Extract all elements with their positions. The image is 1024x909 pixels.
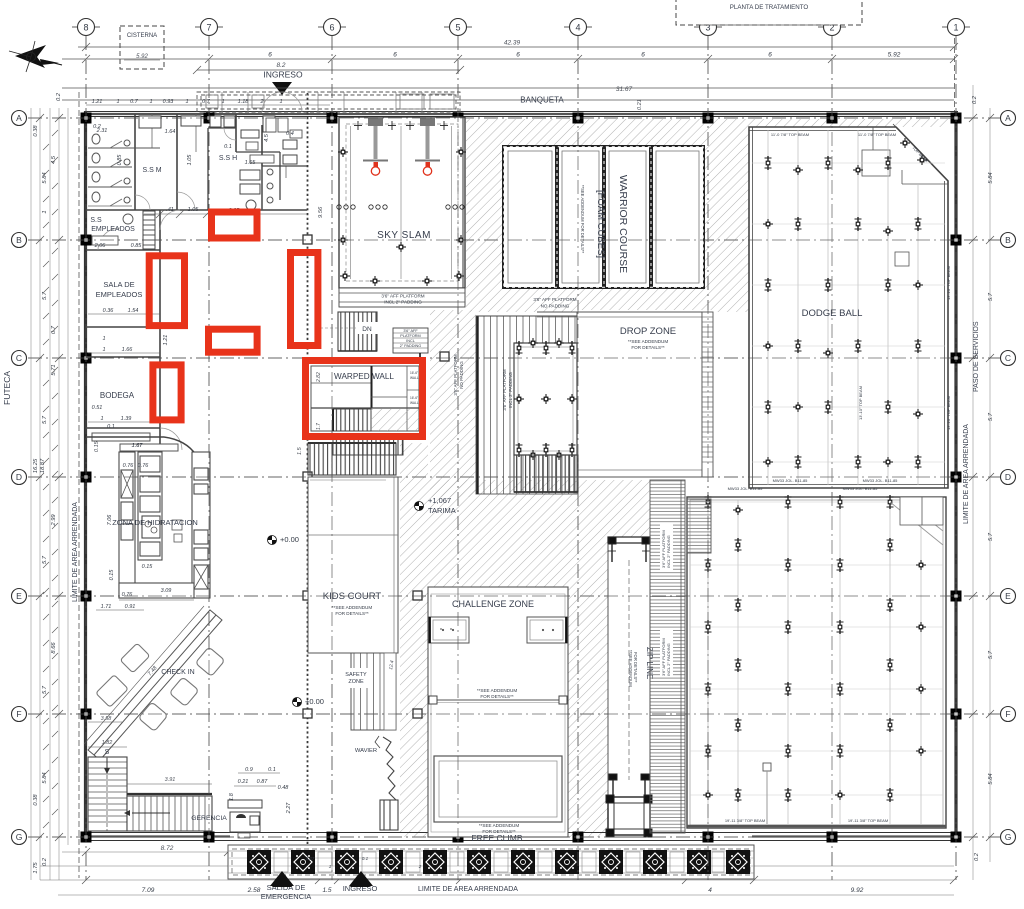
svg-text:ZONA DE HIDRATACION: ZONA DE HIDRATACION bbox=[112, 518, 198, 527]
svg-text:0.85: 0.85 bbox=[117, 154, 123, 166]
svg-text:0.76: 0.76 bbox=[122, 592, 134, 598]
svg-text:A: A bbox=[1005, 113, 1011, 123]
svg-text:0.51: 0.51 bbox=[92, 405, 103, 411]
svg-text:4: 4 bbox=[575, 23, 580, 33]
svg-text:5.7: 5.7 bbox=[988, 532, 994, 541]
svg-text:11'-0 7/8" TOP BEAM: 11'-0 7/8" TOP BEAM bbox=[771, 132, 809, 137]
svg-text:3.91: 3.91 bbox=[165, 777, 176, 783]
svg-text:5.71: 5.71 bbox=[51, 364, 57, 375]
svg-text:8.66: 8.66 bbox=[51, 642, 57, 654]
svg-text:**SEE ADDENDUM FOR DETAILS**: **SEE ADDENDUM FOR DETAILS** bbox=[580, 185, 585, 254]
svg-text:3'6" AFF PLATFORM: 3'6" AFF PLATFORM bbox=[381, 294, 424, 299]
svg-text:1.8: 1.8 bbox=[229, 792, 235, 801]
svg-text:19'-11 3/8" TOP BEAM: 19'-11 3/8" TOP BEAM bbox=[725, 818, 765, 823]
svg-text:+0.00: +0.00 bbox=[305, 697, 324, 706]
svg-text:LIMITE DE AREA ARRENDADA: LIMITE DE AREA ARRENDADA bbox=[72, 502, 79, 602]
svg-text:0.15: 0.15 bbox=[142, 564, 154, 570]
svg-text:2" PADDING: 2" PADDING bbox=[400, 344, 422, 348]
svg-text:1: 1 bbox=[100, 416, 103, 422]
svg-text:1.64: 1.64 bbox=[165, 129, 176, 135]
svg-text:MW33 JOL. B11-85: MW33 JOL. B11-85 bbox=[773, 478, 809, 483]
svg-text:0.27: 0.27 bbox=[306, 856, 315, 861]
svg-text:1.39: 1.39 bbox=[121, 416, 132, 422]
svg-text:3.09: 3.09 bbox=[161, 588, 172, 594]
svg-text:7: 7 bbox=[206, 23, 211, 33]
svg-text:0.4: 0.4 bbox=[286, 131, 294, 137]
svg-text:3'6" AFF PLATFORM: 3'6" AFF PLATFORM bbox=[453, 354, 458, 396]
svg-text:0.87: 0.87 bbox=[257, 779, 269, 785]
svg-text:.41: .41 bbox=[166, 207, 174, 213]
svg-text:LIMITE DE AREA ARRENDADA: LIMITE DE AREA ARRENDADA bbox=[963, 424, 970, 524]
svg-text:1: 1 bbox=[116, 99, 119, 105]
svg-text:8.72: 8.72 bbox=[161, 845, 174, 852]
svg-text:D: D bbox=[1005, 472, 1011, 482]
svg-text:16.25: 16.25 bbox=[33, 458, 39, 473]
svg-text:5.84: 5.84 bbox=[988, 773, 994, 784]
svg-text:S.S: S.S bbox=[90, 217, 102, 224]
svg-text:LIMITE DE AREA ARRENDADA: LIMITE DE AREA ARRENDADA bbox=[418, 886, 518, 893]
svg-text:1: 1 bbox=[953, 23, 958, 33]
svg-text:INCL 2" PADDING: INCL 2" PADDING bbox=[666, 643, 671, 676]
svg-text:G: G bbox=[16, 832, 23, 842]
svg-text:1.5: 1.5 bbox=[297, 446, 303, 455]
svg-text:E: E bbox=[1005, 591, 1011, 601]
svg-text:MW33 JOL. B11-85: MW33 JOL. B11-85 bbox=[728, 486, 764, 491]
svg-text:5.7: 5.7 bbox=[42, 291, 48, 300]
svg-text:SAFETY: SAFETY bbox=[345, 672, 367, 678]
svg-text:WARRIOR COURSE: WARRIOR COURSE bbox=[617, 175, 629, 273]
svg-text:B: B bbox=[16, 235, 22, 245]
svg-text:E: E bbox=[16, 591, 22, 601]
svg-text:5.7: 5.7 bbox=[988, 650, 994, 659]
svg-text:1: 1 bbox=[42, 210, 48, 213]
svg-text:2.27: 2.27 bbox=[286, 802, 292, 815]
svg-text:S.S M: S.S M bbox=[142, 167, 161, 174]
svg-text:5: 5 bbox=[455, 23, 460, 33]
svg-text:FUTECA: FUTECA bbox=[2, 371, 12, 405]
svg-text:6: 6 bbox=[768, 52, 772, 59]
svg-text:EMPLEADOS: EMPLEADOS bbox=[96, 290, 143, 299]
svg-text:9.92: 9.92 bbox=[851, 887, 864, 894]
svg-text:0.9: 0.9 bbox=[245, 767, 253, 773]
svg-text:F: F bbox=[16, 709, 21, 719]
svg-text:5.7: 5.7 bbox=[42, 685, 48, 694]
svg-text:S: S bbox=[105, 749, 110, 756]
svg-text:C: C bbox=[16, 353, 22, 363]
svg-text:2.06: 2.06 bbox=[94, 243, 107, 249]
svg-text:6: 6 bbox=[516, 52, 520, 59]
svg-text:DROP ZONE: DROP ZONE bbox=[620, 326, 676, 337]
svg-text:1.5: 1.5 bbox=[322, 887, 331, 894]
svg-text:5.7: 5.7 bbox=[42, 555, 48, 564]
svg-text:1.21: 1.21 bbox=[92, 99, 103, 105]
svg-text:0.21: 0.21 bbox=[238, 779, 249, 785]
svg-text:1.05: 1.05 bbox=[188, 207, 200, 213]
svg-text:5.92: 5.92 bbox=[888, 52, 901, 59]
svg-text:NO PADDING: NO PADDING bbox=[541, 304, 570, 309]
svg-text:FOR DETAILS**: FOR DETAILS** bbox=[631, 345, 665, 350]
svg-text:KIDS COURT: KIDS COURT bbox=[323, 591, 382, 602]
svg-text:SALA DE: SALA DE bbox=[103, 280, 134, 289]
svg-text:0.76: 0.76 bbox=[138, 463, 150, 469]
svg-text:G: G bbox=[1005, 832, 1012, 842]
svg-text:1.71: 1.71 bbox=[101, 604, 112, 610]
svg-text:0.85: 0.85 bbox=[131, 243, 143, 249]
svg-text:3'6" AFF: 3'6" AFF bbox=[403, 329, 418, 333]
svg-text:INGRESO: INGRESO bbox=[263, 70, 303, 80]
svg-text:FOR DETAILS**: FOR DETAILS** bbox=[480, 694, 514, 699]
svg-text:0.2: 0.2 bbox=[974, 852, 980, 861]
svg-text:FOR DETAILS**: FOR DETAILS** bbox=[633, 652, 638, 683]
svg-text:6: 6 bbox=[329, 23, 334, 33]
svg-text:0.48: 0.48 bbox=[278, 785, 290, 791]
svg-text:2.58: 2.58 bbox=[247, 887, 261, 894]
svg-text:1.18: 1.18 bbox=[238, 99, 250, 105]
svg-text:INCL 2" PADDING: INCL 2" PADDING bbox=[666, 535, 671, 568]
svg-text:**SEE ADDENDUM: **SEE ADDENDUM bbox=[477, 688, 518, 693]
svg-text:+0.00: +0.00 bbox=[280, 535, 299, 544]
svg-text:6: 6 bbox=[268, 52, 272, 59]
svg-text:EMERGENCIA: EMERGENCIA bbox=[261, 892, 311, 901]
svg-text:18.87: 18.87 bbox=[40, 458, 46, 473]
svg-text:0.91: 0.91 bbox=[125, 604, 136, 610]
svg-text:**SEE ADDENDUM: **SEE ADDENDUM bbox=[332, 605, 373, 610]
svg-text:NO PADDING: NO PADDING bbox=[459, 361, 464, 389]
svg-text:ZONE: ZONE bbox=[348, 679, 364, 685]
svg-text:7.09: 7.09 bbox=[142, 887, 155, 894]
svg-text:0.38: 0.38 bbox=[33, 125, 39, 137]
svg-text:D: D bbox=[16, 472, 22, 482]
svg-text:2.82: 2.82 bbox=[316, 372, 322, 383]
svg-text:EMPLEADOS: EMPLEADOS bbox=[91, 226, 135, 233]
svg-text:0.2: 0.2 bbox=[972, 95, 978, 104]
svg-text:0.36: 0.36 bbox=[103, 308, 115, 314]
svg-text:8: 8 bbox=[83, 23, 88, 33]
svg-text:5.84: 5.84 bbox=[988, 172, 994, 183]
svg-text:13'-10" TOP BEAM: 13'-10" TOP BEAM bbox=[858, 386, 863, 420]
svg-text:1: 1 bbox=[149, 99, 152, 105]
svg-text:BANQUETA: BANQUETA bbox=[520, 96, 564, 105]
svg-text:S.S H: S.S H bbox=[219, 155, 237, 162]
svg-text:0.1: 0.1 bbox=[224, 144, 232, 150]
svg-text:13'-10" TOP BEAM: 13'-10" TOP BEAM bbox=[946, 396, 951, 430]
svg-text:WARPED WALL: WARPED WALL bbox=[334, 372, 394, 381]
svg-text:MW33 JOL. B11-85: MW33 JOL. B11-85 bbox=[863, 478, 899, 483]
svg-text:CHALLENGE ZONE: CHALLENGE ZONE bbox=[452, 599, 534, 609]
svg-text:13'-10" TOP BEAM: 13'-10" TOP BEAM bbox=[946, 266, 951, 300]
svg-text:MW33 JOL. B11-85: MW33 JOL. B11-85 bbox=[843, 486, 879, 491]
svg-text:0.15: 0.15 bbox=[94, 440, 100, 452]
svg-text:0.15: 0.15 bbox=[109, 569, 115, 581]
svg-text:**SEE ADDENDUM: **SEE ADDENDUM bbox=[479, 823, 520, 828]
svg-text:1.7: 1.7 bbox=[316, 423, 322, 430]
svg-text:6: 6 bbox=[393, 52, 397, 59]
svg-text:FOR DETAILS**: FOR DETAILS** bbox=[335, 611, 369, 616]
svg-text:5.7: 5.7 bbox=[988, 292, 994, 301]
svg-text:0.2: 0.2 bbox=[93, 124, 101, 130]
svg-text:1.05: 1.05 bbox=[187, 154, 193, 166]
svg-text:0.7: 0.7 bbox=[130, 99, 139, 105]
svg-text:WALL: WALL bbox=[410, 376, 419, 380]
svg-text:5.7: 5.7 bbox=[988, 412, 994, 421]
svg-text:16'-6": 16'-6" bbox=[410, 371, 418, 375]
svg-text:4: 4 bbox=[708, 887, 712, 894]
svg-text:1: 1 bbox=[102, 336, 105, 342]
svg-text:1: 1 bbox=[279, 99, 282, 105]
svg-text:1.75: 1.75 bbox=[33, 862, 39, 874]
svg-text:WAVIER: WAVIER bbox=[355, 748, 377, 754]
svg-text:0.21: 0.21 bbox=[637, 99, 643, 110]
svg-text:INCL 2" PADDING: INCL 2" PADDING bbox=[384, 300, 422, 305]
svg-text:INCL: INCL bbox=[406, 339, 415, 343]
svg-text:DN: DN bbox=[362, 326, 372, 333]
svg-text:A: A bbox=[16, 113, 22, 123]
svg-text:B: B bbox=[1005, 235, 1011, 245]
svg-text:1.21: 1.21 bbox=[163, 335, 169, 346]
svg-text:31.67: 31.67 bbox=[616, 86, 633, 93]
svg-text:1.65: 1.65 bbox=[245, 160, 257, 166]
svg-text:19'-11 3/8" TOP BEAM: 19'-11 3/8" TOP BEAM bbox=[848, 818, 888, 823]
svg-text:2: 2 bbox=[259, 99, 263, 105]
svg-text:1.66: 1.66 bbox=[122, 347, 134, 353]
svg-text:3.58: 3.58 bbox=[101, 716, 113, 722]
svg-text:0.1: 0.1 bbox=[107, 424, 115, 430]
svg-text:3'6" AFF PLATFORM: 3'6" AFF PLATFORM bbox=[502, 369, 507, 411]
svg-text:5.7: 5.7 bbox=[42, 415, 48, 424]
svg-text:6: 6 bbox=[641, 52, 645, 59]
svg-text:1.54: 1.54 bbox=[128, 308, 139, 314]
svg-text:0.7: 0.7 bbox=[202, 99, 211, 105]
svg-text:WALL: WALL bbox=[410, 401, 419, 405]
svg-text:BODEGA: BODEGA bbox=[100, 391, 135, 400]
svg-text:42.39: 42.39 bbox=[504, 40, 521, 47]
svg-text:PLATFORM: PLATFORM bbox=[400, 334, 420, 338]
svg-text:8.2: 8.2 bbox=[276, 62, 285, 69]
svg-text:0.93: 0.93 bbox=[163, 99, 175, 105]
svg-text:INCL 2" PADDING: INCL 2" PADDING bbox=[508, 371, 513, 408]
svg-text:FREE CLIMB: FREE CLIMB bbox=[471, 833, 522, 843]
svg-text:11'-0 7/8" TOP BEAM: 11'-0 7/8" TOP BEAM bbox=[858, 132, 896, 137]
svg-text:0.1: 0.1 bbox=[268, 767, 276, 773]
svg-text:7.06: 7.06 bbox=[107, 514, 113, 526]
svg-text:4.5: 4.5 bbox=[264, 133, 270, 142]
svg-text:+1,067: +1,067 bbox=[428, 496, 451, 505]
svg-text:SKY SLAM: SKY SLAM bbox=[377, 230, 431, 241]
svg-text:CISTERNA: CISTERNA bbox=[127, 33, 157, 39]
svg-text:9.56: 9.56 bbox=[318, 206, 324, 218]
svg-text:1.82: 1.82 bbox=[102, 740, 113, 746]
svg-text:2: 2 bbox=[418, 864, 422, 869]
svg-text:0.2: 0.2 bbox=[42, 857, 48, 866]
svg-text:1.67: 1.67 bbox=[132, 443, 144, 449]
svg-text:0.1: 0.1 bbox=[362, 856, 369, 861]
svg-text:1: 1 bbox=[185, 99, 188, 105]
svg-text:C: C bbox=[1005, 353, 1011, 363]
svg-text:0.2: 0.2 bbox=[56, 92, 62, 101]
svg-text:[FOAM CUBES]: [FOAM CUBES] bbox=[595, 190, 606, 258]
svg-text:F: F bbox=[1005, 709, 1010, 719]
svg-text:0.76: 0.76 bbox=[123, 463, 135, 469]
svg-text:0.38: 0.38 bbox=[33, 794, 39, 806]
svg-text:TARIMA: TARIMA bbox=[428, 506, 456, 515]
svg-text:1: 1 bbox=[102, 347, 105, 353]
svg-text:16'-6": 16'-6" bbox=[410, 396, 418, 400]
svg-text:3'6" AFF PLATFORM: 3'6" AFF PLATFORM bbox=[533, 297, 576, 302]
svg-text:CHECK IN: CHECK IN bbox=[161, 669, 194, 676]
svg-text:PASO DE SERVICIOS: PASO DE SERVICIOS bbox=[973, 321, 980, 392]
svg-text:**SEE ADDENDUM: **SEE ADDENDUM bbox=[628, 339, 669, 344]
svg-text:**SEE ADDENDUM: **SEE ADDENDUM bbox=[628, 650, 633, 687]
svg-text:PLANTA DE TRATAMIENTO: PLANTA DE TRATAMIENTO bbox=[730, 4, 809, 11]
